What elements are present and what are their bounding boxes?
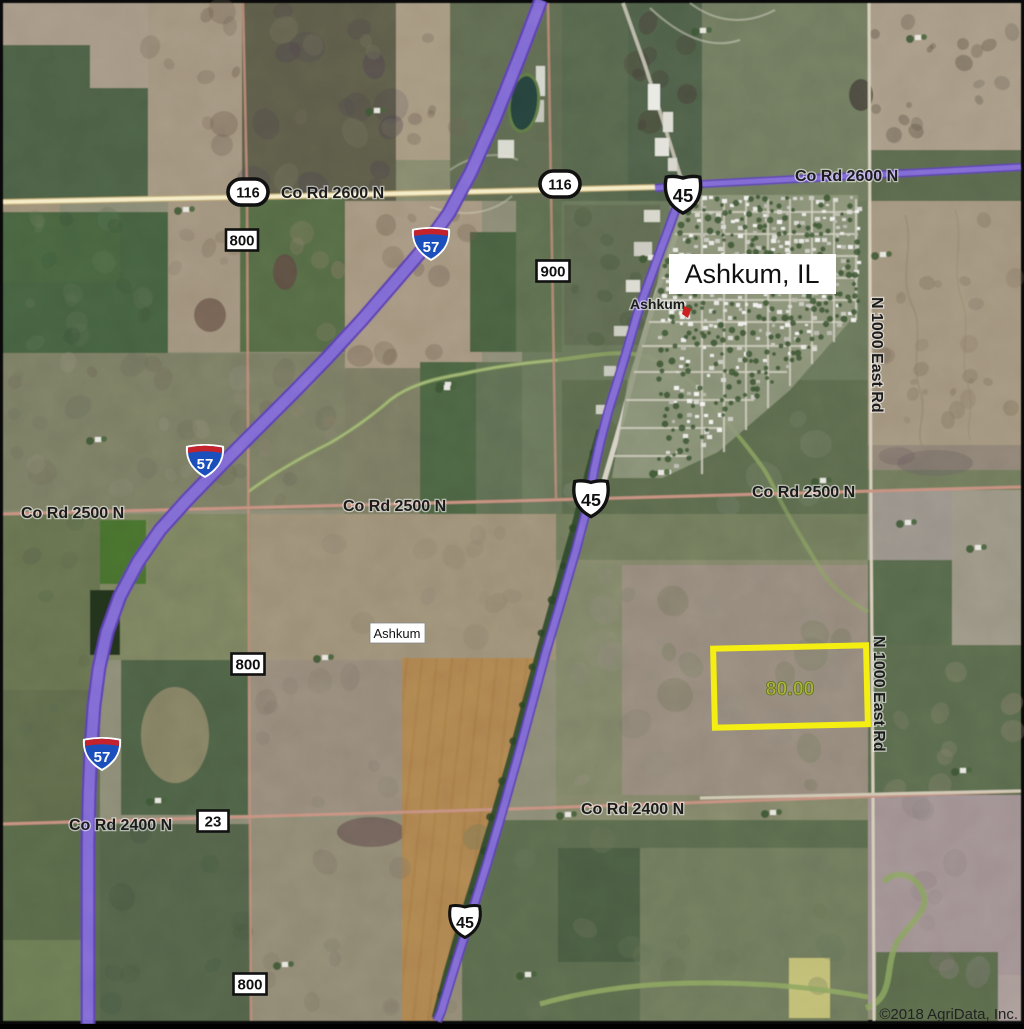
svg-text:80.00: 80.00 — [766, 678, 815, 700]
svg-text:116: 116 — [236, 186, 259, 202]
svg-text:800: 800 — [235, 656, 260, 673]
svg-text:N 1000 East Rd: N 1000 East Rd — [870, 636, 887, 752]
svg-text:57: 57 — [423, 239, 440, 256]
svg-text:Ashkum, IL: Ashkum, IL — [684, 259, 819, 289]
svg-text:Co Rd 2500 N: Co Rd 2500 N — [21, 505, 124, 522]
svg-text:Ashkum: Ashkum — [374, 626, 421, 641]
svg-text:Ashkum: Ashkum — [630, 296, 685, 312]
svg-text:57: 57 — [197, 456, 214, 473]
svg-text:N 1000 East Rd: N 1000 East Rd — [868, 297, 885, 413]
svg-text:Co Rd 2400 N: Co Rd 2400 N — [69, 817, 172, 834]
svg-text:Co Rd 2600 N: Co Rd 2600 N — [281, 185, 384, 202]
svg-text:Co Rd 2400 N: Co Rd 2400 N — [581, 801, 684, 818]
svg-text:©2018 AgriData, Inc.: ©2018 AgriData, Inc. — [879, 1006, 1018, 1023]
svg-text:45: 45 — [673, 185, 693, 206]
svg-text:Co Rd 2500 N: Co Rd 2500 N — [343, 498, 446, 515]
svg-text:Co Rd 2600 N: Co Rd 2600 N — [795, 168, 898, 185]
svg-text:45: 45 — [456, 915, 474, 932]
svg-text:23: 23 — [205, 813, 222, 830]
svg-text:57: 57 — [94, 749, 111, 766]
svg-text:800: 800 — [229, 232, 254, 249]
svg-text:Co Rd 2500 N: Co Rd 2500 N — [752, 484, 855, 501]
svg-text:116: 116 — [548, 178, 571, 194]
svg-text:900: 900 — [540, 263, 565, 280]
svg-text:45: 45 — [581, 490, 601, 510]
svg-text:800: 800 — [237, 976, 262, 993]
